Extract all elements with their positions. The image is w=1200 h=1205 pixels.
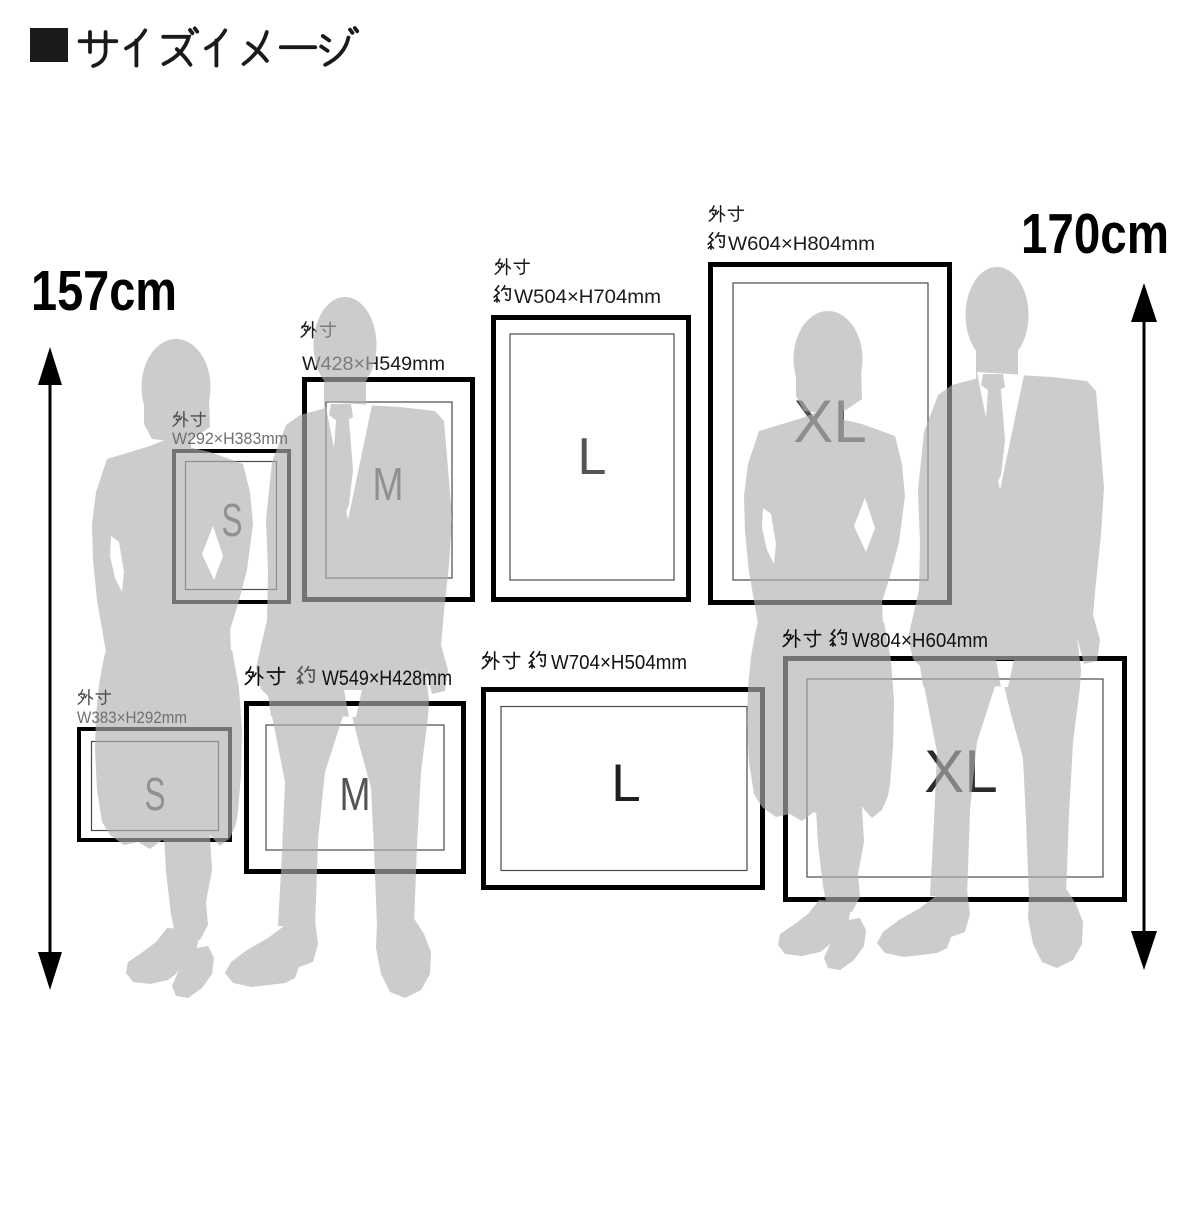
svg-text:157cm: 157cm <box>31 259 177 322</box>
svg-text:W804×H604mm: W804×H604mm <box>852 630 988 652</box>
svg-text:W549×H428mm: W549×H428mm <box>322 667 452 690</box>
svg-text:M: M <box>340 768 371 820</box>
svg-text:W704×H504mm: W704×H504mm <box>551 652 687 674</box>
svg-text:W292×H383mm: W292×H383mm <box>172 429 288 448</box>
svg-text:W383×H292mm: W383×H292mm <box>77 708 187 727</box>
svg-text:W604×H804mm: W604×H804mm <box>728 233 875 255</box>
svg-text:L: L <box>578 428 607 486</box>
svg-text:L: L <box>611 754 640 813</box>
svg-text:W504×H704mm: W504×H704mm <box>514 286 661 308</box>
svg-text:170cm: 170cm <box>1021 202 1169 265</box>
